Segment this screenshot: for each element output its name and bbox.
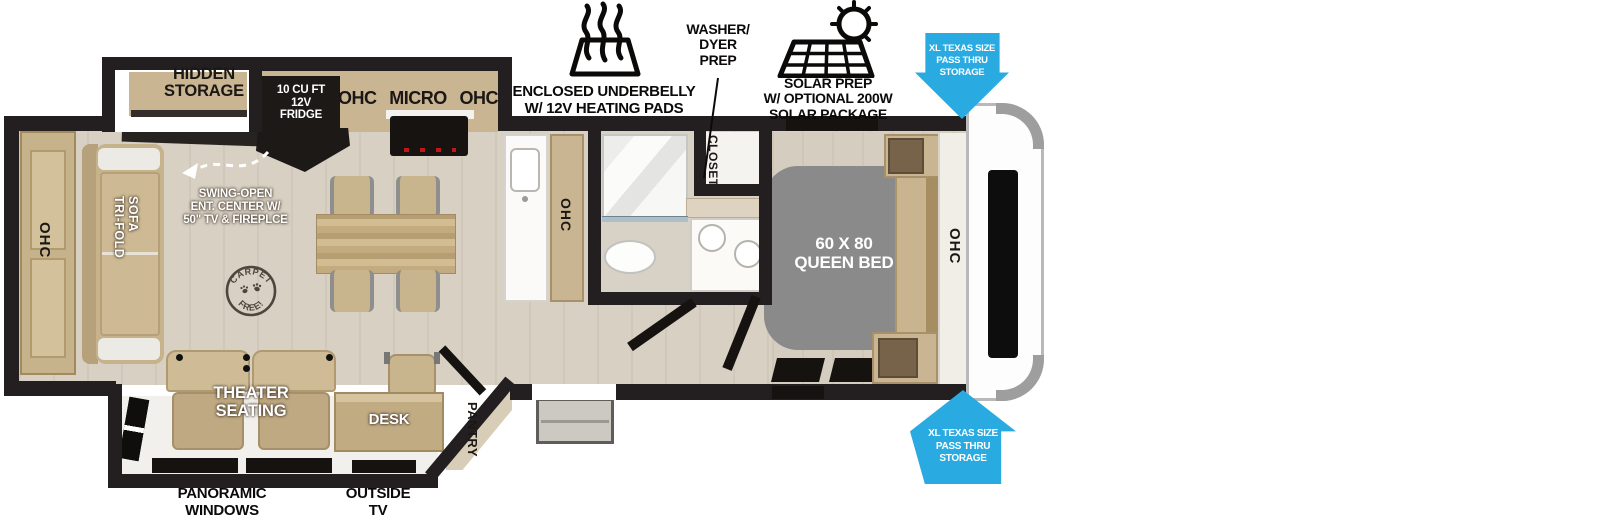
entry-door-gap [532, 384, 616, 400]
sofa-arm-bottom [98, 338, 160, 360]
stove-knobs [404, 148, 456, 152]
desk-chair-leg [434, 352, 440, 364]
shower [602, 134, 688, 220]
bedroom-ohc-label: OHC [946, 228, 963, 264]
pass-thru-arrow-up-text: XL TEXAS SIZE PASS THRU STORAGE [910, 428, 1016, 466]
kitchen-faucet [522, 196, 528, 202]
bathroom-wall-left [588, 131, 601, 293]
front-window [988, 170, 1018, 358]
dining-chair [330, 270, 374, 312]
pass-thru-arrow-down-text: XL TEXAS SIZE PASS THRU STORAGE [915, 43, 1009, 79]
queen-bed-label: 60 X 80 QUEEN BED [764, 234, 924, 272]
front-cap-corner-top [996, 103, 1044, 149]
outside-tv-window [352, 460, 416, 473]
washer-leader-line [692, 74, 726, 184]
rear-ohc-panel-bottom [30, 258, 66, 358]
kitchen-ohc-row: OHC MICRO OHC [338, 86, 498, 110]
bathroom-wall-bottom [588, 292, 772, 305]
dining-chair [330, 176, 374, 218]
dining-table [316, 214, 456, 274]
panoramic-windows-callout: PANORAMIC WINDOWS [147, 486, 297, 519]
sofa-label: TRI-FOLDSOFA [112, 196, 140, 258]
cup-holder [243, 365, 250, 372]
micro-label: MICRO [389, 88, 447, 109]
theater-slideout-wall-left [108, 384, 122, 488]
kitchen-sink [510, 148, 540, 192]
panoramic-window [246, 458, 332, 473]
svg-text:FREE!: FREE! [236, 298, 265, 312]
pantry-label: PANTRY [465, 402, 480, 457]
dining-chair [396, 270, 440, 312]
front-cap-corner-bottom [996, 355, 1044, 401]
vanity-sink [734, 240, 762, 268]
kitchen-ohc-right-label: OHC [460, 88, 499, 109]
solar-callout: SOLAR PREP W/ OPTIONAL 200W SOLAR PACKAG… [728, 76, 928, 122]
wardrobe-top-door [888, 138, 924, 174]
fridge-label-box: 10 CU FT12VFRIDGE [262, 76, 340, 130]
wall-rear [4, 116, 19, 396]
shower-glass-door [602, 216, 688, 222]
bedroom-bottom-window [772, 386, 824, 399]
desk-top-edge [336, 394, 442, 402]
closet-wall-bottom [694, 184, 772, 196]
wall-top-left [4, 116, 108, 131]
under-bed-shadow [771, 358, 825, 382]
sofa-arm-top [98, 148, 160, 170]
heating-pads-icon [560, 0, 650, 80]
entry-steps-tread-line [541, 420, 609, 423]
hidden-storage-unit-shadow [131, 110, 247, 117]
rear-ohc-label: OHC [36, 222, 53, 258]
carpet-free-stamp: CARPET FREE! [224, 264, 278, 318]
theater-seating-label: THEATER SEATING [170, 384, 332, 421]
floorplan-canvas: OHC TRI-FOLDSOFA 10 CU FT12VFRIDGE OHC M… [0, 0, 1600, 523]
kitchen-ohc-left-label: OHC [338, 88, 377, 109]
cup-holder [243, 354, 250, 361]
kitchen-slideout-wall-top [250, 57, 512, 71]
washer-dryer-callout: WASHER/ DYER PREP [672, 22, 764, 68]
dining-chair [396, 176, 440, 218]
bedroom-wall [759, 131, 772, 293]
paw-print-icon [240, 283, 261, 294]
cup-holder [176, 354, 183, 361]
toilet [604, 240, 656, 274]
wall-bottom-left [4, 381, 116, 396]
desk-label: DESK [334, 412, 444, 429]
solar-prep-icon [772, 0, 882, 78]
svg-text:CARPET: CARPET [228, 266, 275, 285]
outside-tv-callout: OUTSIDE TV [330, 486, 426, 519]
pass-thru-arrow-up: XL TEXAS SIZE PASS THRU STORAGE [910, 390, 1016, 484]
swing-open-arrow [180, 146, 272, 192]
panoramic-window [152, 458, 238, 473]
vanity-sink [698, 224, 726, 252]
cup-holder [326, 354, 333, 361]
underbelly-callout: ENCLOSED UNDERBELLY W/ 12V HEATING PADS [498, 84, 710, 117]
counter-ohc-label: OHC [558, 198, 574, 232]
wardrobe-bottom-door [878, 338, 918, 378]
desk-chair-leg [384, 352, 390, 364]
hidden-storage-label: HIDDEN STORAGE [148, 66, 260, 101]
swing-open-label: SWING-OPEN ENT. CENTER W/ 50" TV & FIREP… [148, 188, 323, 227]
